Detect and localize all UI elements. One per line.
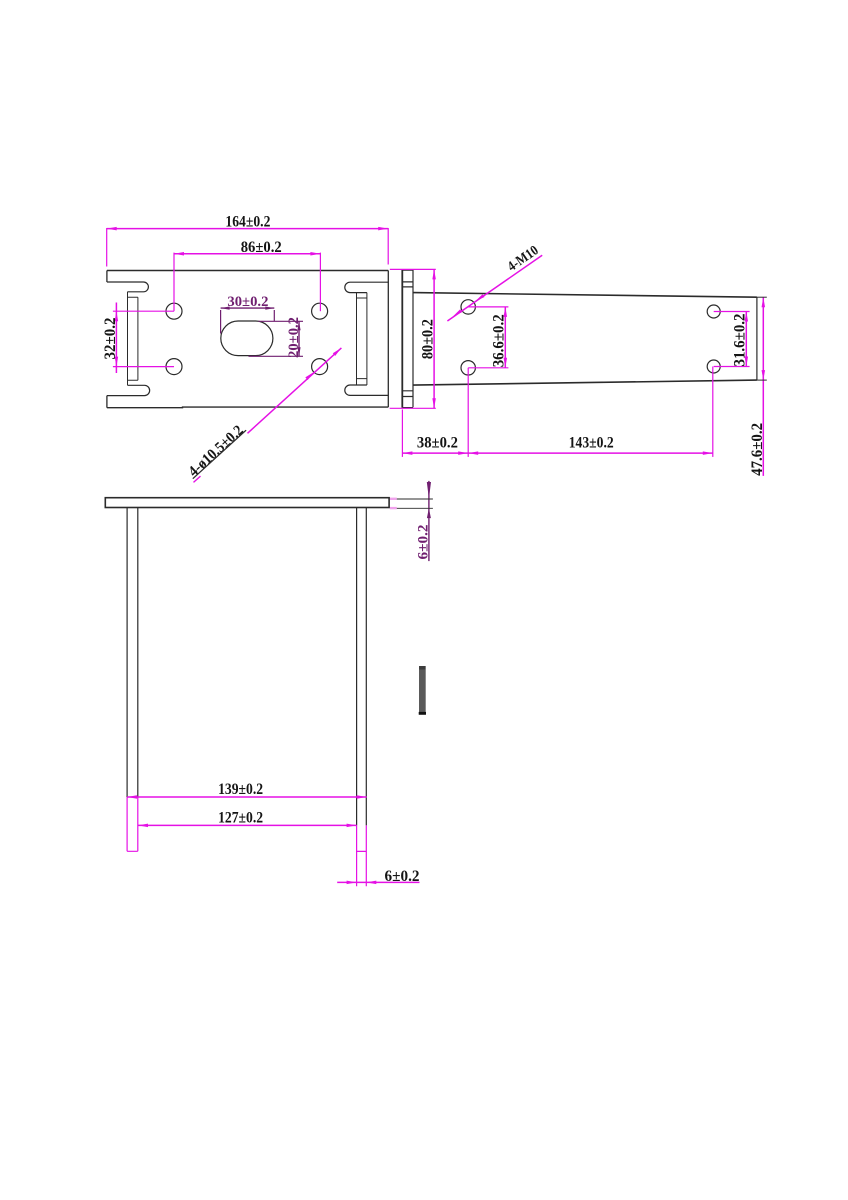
svg-text:47.6±0.2: 47.6±0.2 bbox=[749, 423, 766, 476]
svg-text:36.6±0.2: 36.6±0.2 bbox=[490, 314, 507, 367]
svg-text:20±0.2: 20±0.2 bbox=[286, 317, 302, 358]
svg-text:80±0.2: 80±0.2 bbox=[419, 319, 436, 359]
svg-text:139±0.2: 139±0.2 bbox=[218, 781, 263, 798]
svg-text:127±0.2: 127±0.2 bbox=[218, 809, 263, 826]
svg-text:143±0.2: 143±0.2 bbox=[569, 435, 614, 452]
svg-text:164±0.2: 164±0.2 bbox=[225, 214, 270, 231]
svg-text:31.6±0.2: 31.6±0.2 bbox=[732, 314, 749, 367]
svg-text:30±0.2: 30±0.2 bbox=[227, 294, 268, 310]
svg-text:6±0.2: 6±0.2 bbox=[415, 525, 431, 560]
svg-text:38±0.2: 38±0.2 bbox=[417, 435, 458, 452]
svg-text:86±0.2: 86±0.2 bbox=[241, 239, 282, 256]
svg-text:6±0.2: 6±0.2 bbox=[385, 868, 420, 885]
svg-text:32±0.2: 32±0.2 bbox=[102, 318, 119, 360]
